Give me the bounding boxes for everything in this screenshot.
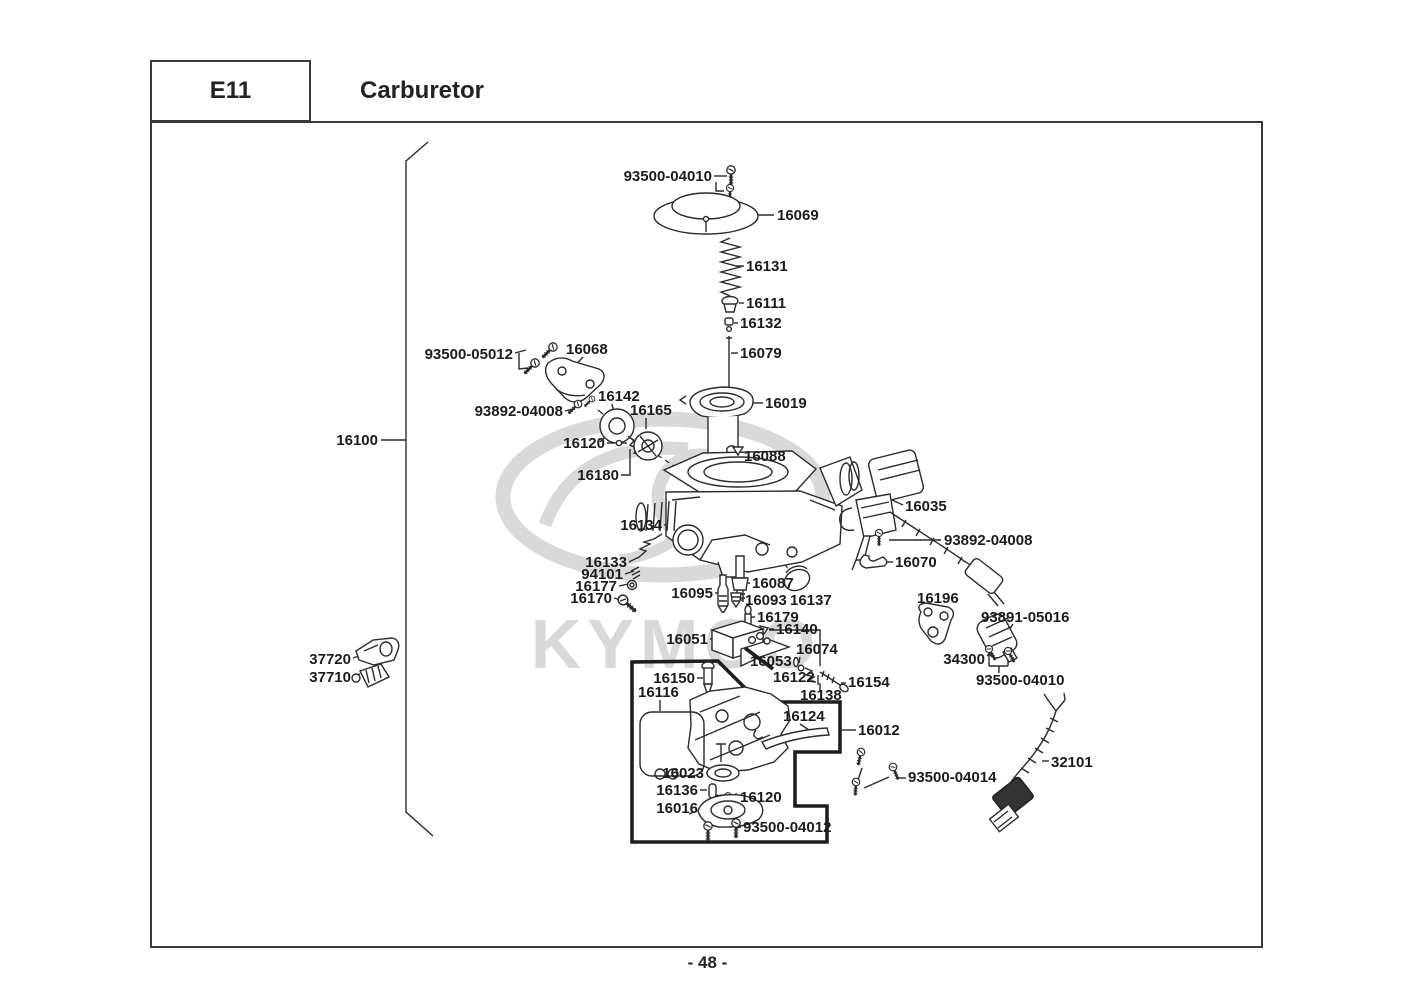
part-label-93500-04010-top: 93500-04010: [624, 168, 712, 185]
part-label-16019: 16019: [765, 395, 807, 412]
part-label-93892-04008-right: 93892-04008: [944, 532, 1032, 549]
part-label-16138: 16138: [800, 687, 842, 704]
part-16177-oring: [628, 581, 637, 590]
part-label-16120-top: 16120: [563, 435, 605, 452]
page-number: - 48 -: [0, 953, 1415, 973]
part-label-16051: 16051: [666, 631, 708, 648]
page-code: E11: [210, 77, 251, 105]
part-37720-bracket: [356, 638, 399, 665]
part-label-16122: 16122: [773, 669, 815, 686]
part-screw-93892-04008-right: [875, 529, 882, 545]
part-label-16154: 16154: [848, 674, 890, 691]
part-16136-pin: [709, 784, 716, 798]
part-label-93500-04012: 93500-04012: [743, 819, 831, 836]
part-label-16131: 16131: [746, 258, 788, 275]
part-label-16074: 16074: [796, 641, 838, 658]
part-label-16095: 16095: [671, 585, 713, 602]
exploded-parts-diagram: KYMCO: [0, 0, 1415, 1000]
part-label-16120-bottom: 16120: [740, 789, 782, 806]
part-label-32101: 32101: [1051, 754, 1093, 771]
part-label-93892-04008-left: 93892-04008: [475, 403, 563, 420]
part-label-16035: 16035: [905, 498, 947, 515]
part-label-16016: 16016: [656, 800, 698, 817]
part-16111-needle-holder: [722, 297, 738, 313]
part-label-16165: 16165: [630, 402, 672, 419]
part-label-16134: 16134: [620, 517, 662, 534]
part-label-16111: 16111: [746, 295, 786, 312]
part-label-16093: 16093: [745, 592, 787, 609]
part-label-37720: 37720: [309, 651, 351, 668]
part-label-16196: 16196: [917, 590, 959, 607]
part-label-16100: 16100: [336, 432, 378, 449]
page-title: Carburetor: [360, 60, 484, 122]
part-label-37710: 37710: [309, 669, 351, 686]
part-16131-spring: [721, 238, 740, 296]
part-label-16140: 16140: [776, 621, 818, 638]
part-label-16069: 16069: [777, 207, 819, 224]
part-label-16132: 16132: [740, 315, 782, 332]
part-16196-insulator-flange: [919, 603, 954, 644]
part-label-93500-04014: 93500-04014: [908, 769, 997, 786]
part-16068-bracket: [546, 358, 604, 402]
part-label-34300: 34300: [943, 651, 985, 668]
part-16095-needle-jet: [718, 575, 728, 612]
part-label-16068: 16068: [566, 341, 608, 358]
part-label-16079: 16079: [740, 345, 782, 362]
manual-page: { "header": { "code": "E11", "title": "C…: [0, 0, 1415, 1000]
part-16132-jet-needle-seat: [725, 318, 733, 331]
assembly-bracket-16100: [381, 142, 433, 836]
part-label-93500-04010-bottom: 93500-04010: [976, 672, 1064, 689]
part-label-16170: 16170: [570, 590, 612, 607]
part-label-16023: 16023: [662, 765, 704, 782]
part-16070-hook: [860, 555, 887, 568]
page-code-box: E11: [150, 60, 311, 122]
part-label-16053: 16053: [750, 653, 792, 670]
part-label-16136: 16136: [656, 782, 698, 799]
part-label-16012: 16012: [858, 722, 900, 739]
part-label-16070: 16070: [895, 554, 937, 571]
part-screws-93500-04014: [852, 748, 902, 796]
part-16035-auto-bystarter: [840, 449, 1005, 606]
part-label-16087: 16087: [752, 575, 794, 592]
part-label-93891-05016: 93891-05016: [981, 609, 1069, 626]
part-label-16124: 16124: [783, 708, 825, 725]
part-label-16116: 16116: [638, 684, 679, 701]
part-37710-thermo-sensor: [352, 664, 389, 687]
part-16069-top-cover: [654, 193, 758, 234]
part-label-16180: 16180: [577, 467, 619, 484]
part-label-16088: 16088: [744, 448, 786, 465]
part-label-16137: 16137: [790, 592, 832, 609]
part-label-93500-05012: 93500-05012: [425, 346, 513, 363]
